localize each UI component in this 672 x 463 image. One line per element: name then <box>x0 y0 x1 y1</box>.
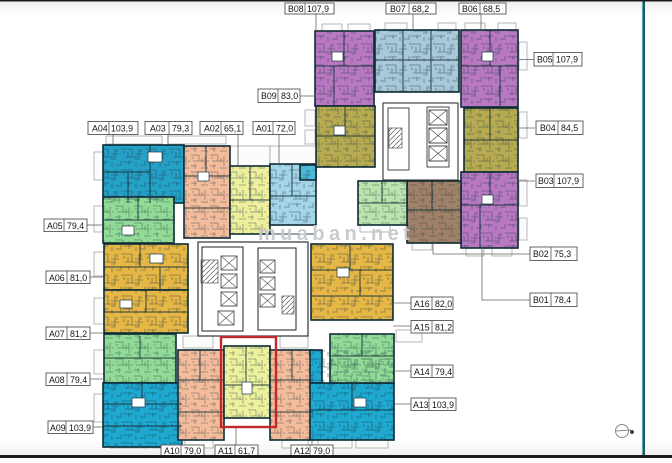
svg-text:B05: B05 <box>537 55 553 65</box>
svg-text:B09: B09 <box>261 91 277 101</box>
svg-text:79,3: 79,3 <box>172 124 189 134</box>
svg-text:A14: A14 <box>414 367 430 377</box>
svg-text:79,0: 79,0 <box>184 446 201 456</box>
svg-text:103,9: 103,9 <box>69 423 91 433</box>
svg-text:A15: A15 <box>414 323 430 333</box>
svg-text:B02: B02 <box>533 249 549 259</box>
svg-text:81,2: 81,2 <box>435 323 452 333</box>
svg-text:B04: B04 <box>540 123 556 133</box>
svg-text:103,9: 103,9 <box>111 124 133 134</box>
svg-text:81,2: 81,2 <box>70 329 87 339</box>
svg-text:75,3: 75,3 <box>554 249 571 259</box>
svg-text:78,4: 78,4 <box>554 295 571 305</box>
svg-text:B01: B01 <box>533 295 549 305</box>
svg-text:65,1: 65,1 <box>224 124 241 134</box>
svg-text:B07: B07 <box>390 4 406 14</box>
svg-text:68,5: 68,5 <box>483 4 500 14</box>
svg-text:A11: A11 <box>218 446 233 456</box>
svg-text:A06: A06 <box>49 273 65 283</box>
svg-text:72,0: 72,0 <box>276 124 293 134</box>
svg-text:A03: A03 <box>150 124 166 134</box>
svg-text:68,2: 68,2 <box>412 4 429 14</box>
svg-text:103,9: 103,9 <box>432 400 454 410</box>
svg-text:B08: B08 <box>288 4 304 14</box>
svg-text:A01: A01 <box>256 124 272 134</box>
svg-text:A16: A16 <box>414 299 430 309</box>
svg-text:82,0: 82,0 <box>435 299 452 309</box>
svg-text:107,9: 107,9 <box>556 55 578 65</box>
svg-text:79,4: 79,4 <box>435 367 452 377</box>
svg-text:A12: A12 <box>294 446 310 456</box>
svg-text:83,0: 83,0 <box>281 91 298 101</box>
svg-text:107,9: 107,9 <box>557 176 579 186</box>
svg-text:A10: A10 <box>164 446 180 456</box>
svg-text:84,5: 84,5 <box>561 123 578 133</box>
svg-text:A09: A09 <box>50 423 66 433</box>
svg-text:79,4: 79,4 <box>70 375 87 385</box>
svg-text:B06: B06 <box>462 4 478 14</box>
svg-text:A08: A08 <box>49 375 65 385</box>
svg-text:79,0: 79,0 <box>313 446 330 456</box>
svg-text:79,4: 79,4 <box>67 221 84 231</box>
svg-text:A07: A07 <box>49 329 65 339</box>
svg-text:A02: A02 <box>204 124 220 134</box>
svg-text:A13: A13 <box>413 400 429 410</box>
svg-text:107,9: 107,9 <box>307 4 329 14</box>
svg-text:61,7: 61,7 <box>238 446 255 456</box>
svg-text:A04: A04 <box>92 124 108 134</box>
svg-text:A05: A05 <box>47 221 63 231</box>
svg-text:81,0: 81,0 <box>70 273 87 283</box>
svg-text:muaban.net: muaban.net <box>258 223 414 245</box>
svg-text:B03: B03 <box>538 176 554 186</box>
